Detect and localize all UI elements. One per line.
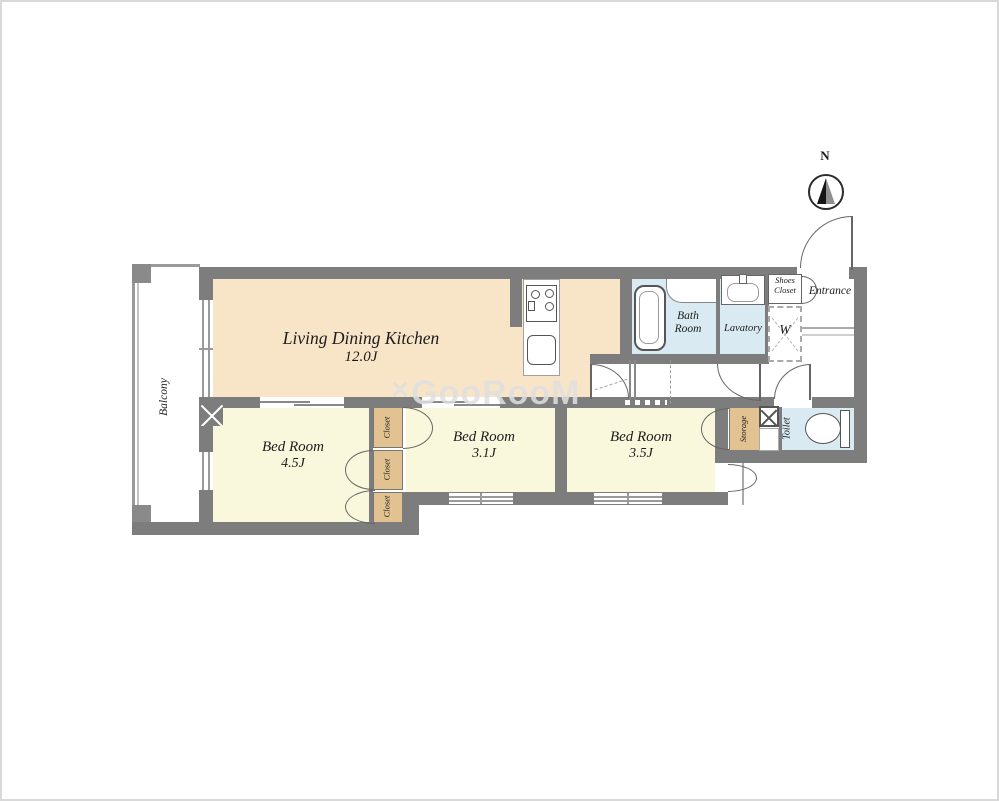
bedroom-45-window [199,452,213,490]
stove-burner-1 [531,290,540,299]
ldk-name: Living Dining Kitchen [210,329,512,349]
stove-burner-3 [545,302,554,311]
bedroom-35-side-door-upper [728,464,757,478]
entrance-door-leaf [851,216,853,270]
compass-needle-light [826,178,835,204]
pipe-shaft-icon-west [201,404,223,426]
watermark-text: GooRooM [411,374,580,412]
closet-c-label: Closet [383,486,394,528]
bedroom-31-size: 3.1J [410,446,558,462]
bedroom-31-window [449,493,513,504]
wall-bath-bottom [590,354,769,364]
entrance-step-line-2 [802,334,854,336]
ldk-size: 12.0J [210,349,512,366]
closet-b-label: Closet [383,449,394,491]
wall-bottom-se [715,450,867,463]
stove-burner-2 [545,289,554,298]
balcony-label: Balcony [158,362,172,432]
watermark-logo-icon: ✕ [390,377,411,404]
lavatory-door-leaf [759,364,761,401]
ldk-label: Living Dining Kitchen 12.0J [210,329,512,373]
bedroom-35-size: 3.5J [566,446,716,462]
storage-label: Storage [739,407,751,451]
entrance-step-line-1 [802,327,854,329]
bedroom-45-name: Bed Room [214,439,372,456]
toilet-bowl-icon [805,413,841,444]
bedroom-31-name: Bed Room [410,429,558,446]
balcony-rail-left [132,264,135,524]
bedroom-45-label: Bed Room 4.5J [214,439,372,479]
toilet-door-arc [774,364,811,399]
wall-kitchen-stub [510,279,522,327]
pipe-shaft-icon-east [759,406,779,427]
bedroom-35-name: Bed Room [566,429,716,446]
bathtub-inner [639,291,659,344]
wall-bath-left [620,279,632,364]
bathroom-line1: Bath [657,310,719,323]
bedroom-45-size: 4.5J [214,456,372,472]
utility-shelf [759,428,779,451]
floorplan-canvas: N Balcony Living Dining Kitchen 12.0J Be… [0,0,999,801]
lavatory-door-arc [717,364,761,401]
compass-north-label: N [814,149,836,165]
shoes-closet-line2: Closet [768,286,802,296]
toilet-label: Toilet [782,406,795,452]
bedroom-35-sliding-track [625,400,667,405]
bedroom-35-window [594,493,662,504]
bath-counter [666,279,716,303]
ldk-hall-boundary-dashed [670,360,671,404]
bedroom-45-sliding-door-2 [294,404,344,406]
bedroom-35-label: Bed Room 3.5J [566,429,716,469]
balcony-rail-left-inner [137,264,139,524]
kitchen-sink-icon [527,335,556,365]
entrance-door-arc [800,216,852,268]
balcony-corner-post-top [132,264,151,283]
stove-grill [528,301,535,311]
bedroom-31-label: Bed Room 3.1J [410,429,558,469]
compass-needle-dark [817,178,826,204]
washbasin-bowl [727,283,759,302]
bedroom-35-side-door-lower [728,478,757,492]
entrance-label: Entrance [798,285,862,301]
shoes-closet-label: Shoes Closet [768,276,802,302]
toilet-door-leaf [809,364,811,400]
bedroom-45-sliding-door [260,401,310,403]
hall-door-frame-2 [634,360,636,400]
washer-label: W [768,322,802,342]
watermark: ✕GooRooM [390,374,630,418]
washbasin-faucet [739,274,747,284]
toilet-tank [840,410,850,448]
